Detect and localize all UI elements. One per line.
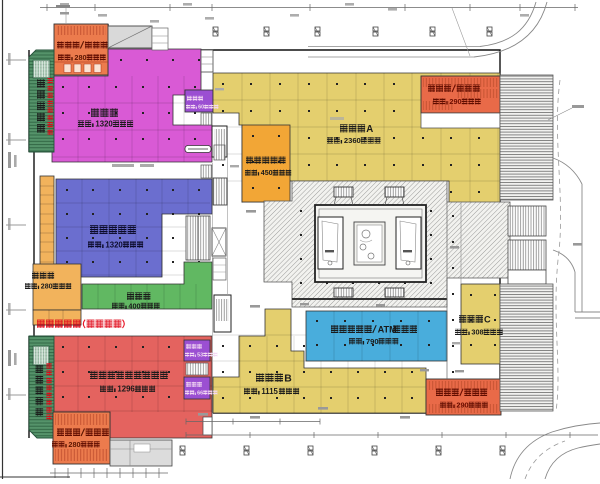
- svg-text:280: 280: [74, 53, 86, 62]
- svg-text:1320: 1320: [105, 241, 123, 250]
- svg-text:53: 53: [197, 353, 203, 359]
- svg-text:1320: 1320: [95, 120, 113, 129]
- svg-text:280: 280: [68, 440, 80, 449]
- svg-text:450: 450: [261, 169, 273, 177]
- svg-text:66: 66: [197, 391, 203, 397]
- svg-text:A: A: [366, 124, 373, 135]
- svg-text:2360: 2360: [344, 136, 361, 145]
- svg-text:790: 790: [366, 337, 379, 346]
- svg-text:1115: 1115: [261, 387, 278, 396]
- svg-text:290: 290: [449, 97, 461, 106]
- svg-text:400: 400: [128, 302, 140, 311]
- svg-text:B: B: [284, 374, 292, 385]
- svg-text:290: 290: [456, 401, 468, 410]
- svg-text:1296: 1296: [117, 385, 135, 394]
- svg-text:C: C: [484, 315, 491, 325]
- svg-text:308: 308: [471, 328, 483, 337]
- svg-text:280: 280: [41, 283, 53, 291]
- svg-text:60: 60: [198, 105, 204, 111]
